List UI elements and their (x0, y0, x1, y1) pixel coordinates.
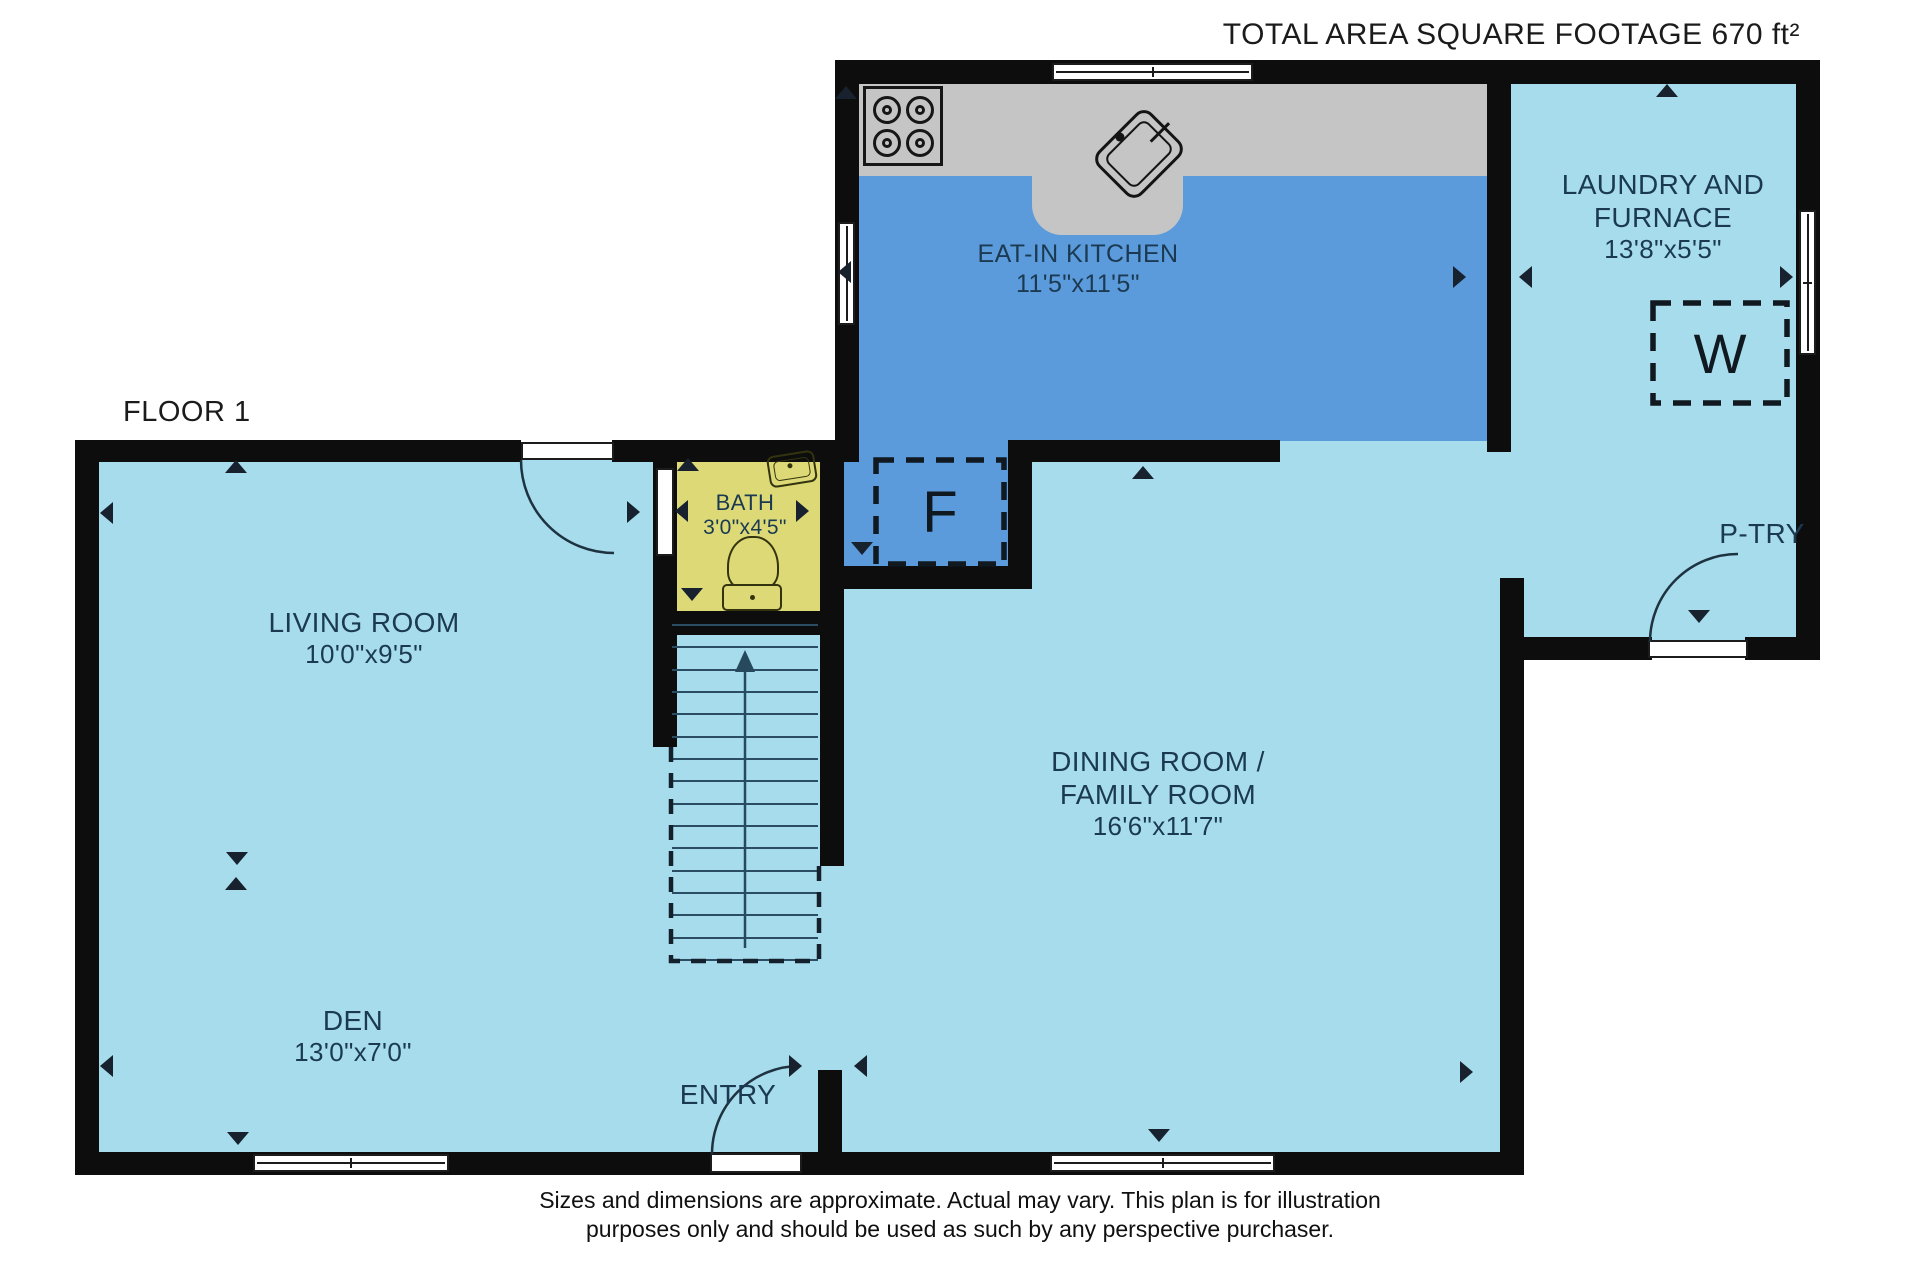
wall-stairs-left (653, 635, 677, 747)
floor-label: FLOOR 1 (123, 396, 251, 429)
living-room-label: LIVING ROOM 10'0"x9'5" (214, 606, 514, 670)
dining-dims: 16'6"x11'7" (1008, 811, 1308, 842)
den-label: DEN 13'0"x7'0" (203, 1004, 503, 1068)
dim-arrow-right-icon (1780, 266, 1793, 288)
dim-arrow-left-icon (100, 502, 113, 524)
dim-arrow-up-icon (1132, 466, 1154, 479)
wall-laundry-right (1796, 60, 1820, 660)
laundry-name-line1: LAUNDRY AND (1513, 168, 1813, 201)
window-kitchen-top (1052, 63, 1253, 81)
wall-living-top-left (75, 440, 521, 462)
kitchen-dims: 11'5"x11'5" (928, 270, 1228, 300)
dim-arrow-left-icon (1519, 266, 1532, 288)
dim-arrow-down-icon (681, 588, 703, 601)
dim-arrow-down-icon (1148, 1129, 1170, 1142)
laundry-name-line2: FURNACE (1513, 201, 1813, 234)
den-name: DEN (203, 1004, 503, 1037)
disclaimer: Sizes and dimensions are approximate. Ac… (360, 1186, 1560, 1244)
dim-arrow-down-icon (851, 542, 873, 555)
wall-dining-top (1008, 440, 1280, 462)
window-den-bottom (253, 1154, 449, 1172)
dim-arrow-left-icon (854, 1055, 867, 1077)
dim-arrow-right-icon (1453, 266, 1466, 288)
toilet-tank-icon (722, 584, 782, 611)
window-dining-bottom (1050, 1154, 1275, 1172)
door-entry (710, 1153, 802, 1173)
dim-arrow-up-icon (225, 460, 247, 473)
floor-plan: TOTAL AREA SQUARE FOOTAGE 670 ft² FLOOR … (0, 0, 1920, 1280)
wall-kitchen-laundry-divider (1487, 60, 1511, 452)
wall-bath-bottom (653, 611, 841, 635)
dim-arrow-down-icon (227, 1132, 249, 1145)
door-living-top (521, 442, 614, 460)
den-dims: 13'0"x7'0" (203, 1037, 503, 1068)
disclaimer-line1: Sizes and dimensions are approximate. Ac… (360, 1186, 1560, 1215)
furnace-letter: F (876, 460, 1004, 564)
dim-arrow-left-icon (100, 1055, 113, 1077)
dim-arrow-down-icon (1688, 610, 1710, 623)
dim-arrow-right-icon (1460, 1061, 1473, 1083)
entry-label: ENTRY (638, 1078, 818, 1111)
wall-dining-right (1500, 578, 1524, 1175)
dim-arrow-right-icon (789, 1055, 802, 1077)
stove-icon (863, 86, 943, 166)
door-pantry (1648, 640, 1748, 658)
wall-alcove-bottom (832, 566, 1032, 589)
living-room-name: LIVING ROOM (214, 606, 514, 639)
wall-outer-left (75, 440, 99, 1175)
wall-top-outer (835, 60, 1820, 84)
disclaimer-line2: purposes only and should be used as such… (360, 1215, 1560, 1244)
dim-arrow-right-icon (796, 500, 809, 522)
dim-arrow-down-icon (226, 852, 248, 865)
dim-arrow-up-icon (225, 877, 247, 890)
dim-arrow-up-icon (835, 86, 857, 99)
wall-entry-divider (818, 1070, 842, 1165)
wall-alcove-right (1008, 440, 1032, 589)
laundry-dims: 13'8"x5'5" (1513, 234, 1813, 265)
dim-arrow-up-icon (677, 458, 699, 471)
dining-name-line1: DINING ROOM / (1008, 745, 1308, 778)
pantry-label: P-TRY (1672, 517, 1852, 550)
dim-arrow-left-icon (675, 500, 688, 522)
dining-name-line2: FAMILY ROOM (1008, 778, 1308, 811)
dim-arrow-right-icon (627, 501, 640, 523)
kitchen-label: EAT-IN KITCHEN 11'5"x11'5" (928, 240, 1228, 299)
total-area-title: TOTAL AREA SQUARE FOOTAGE 670 ft² (1100, 18, 1800, 52)
wall-pantry-bottom-right (1745, 637, 1820, 660)
dim-arrow-left-icon (838, 261, 851, 283)
laundry-label: LAUNDRY AND FURNACE 13'8"x5'5" (1513, 168, 1813, 265)
kitchen-name: EAT-IN KITCHEN (928, 240, 1228, 270)
dim-arrow-up-icon (1656, 84, 1678, 97)
living-room-dims: 10'0"x9'5" (214, 639, 514, 670)
dining-room-label: DINING ROOM / FAMILY ROOM 16'6"x11'7" (1008, 745, 1308, 842)
washer-letter: W (1653, 303, 1787, 403)
